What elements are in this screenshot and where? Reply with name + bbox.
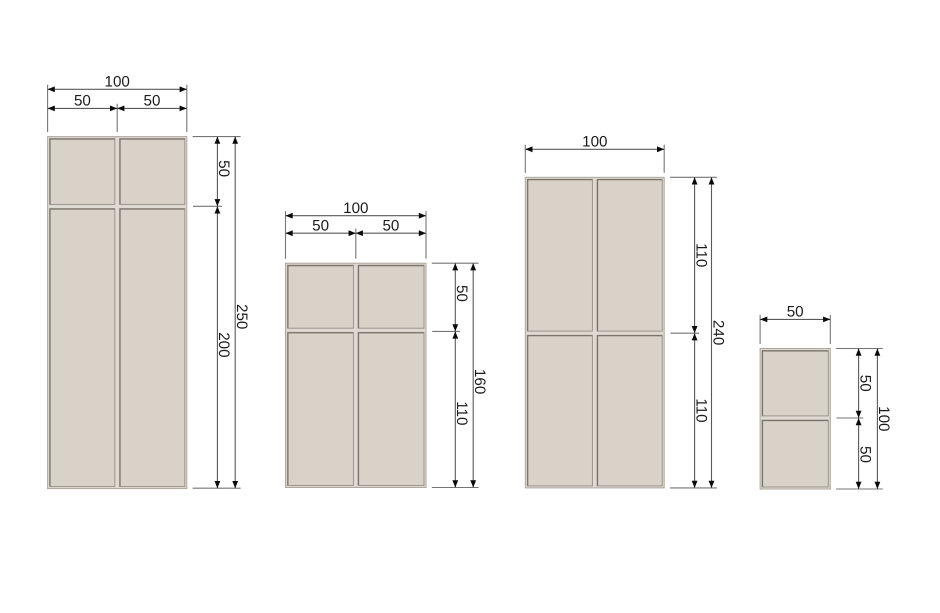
svg-text:250: 250 [233, 304, 250, 329]
svg-text:100: 100 [582, 134, 607, 151]
svg-text:50: 50 [856, 446, 873, 463]
svg-text:110: 110 [453, 401, 470, 425]
svg-text:50: 50 [74, 93, 91, 110]
svg-text:50: 50 [144, 93, 161, 110]
svg-text:50: 50 [215, 160, 232, 177]
svg-text:110: 110 [692, 243, 709, 267]
svg-text:100: 100 [105, 74, 130, 91]
svg-text:50: 50 [382, 217, 399, 234]
svg-text:50: 50 [453, 285, 470, 302]
svg-text:200: 200 [215, 332, 232, 357]
svg-text:50: 50 [312, 217, 329, 234]
svg-text:240: 240 [709, 320, 726, 345]
svg-text:100: 100 [343, 200, 368, 217]
svg-text:160: 160 [471, 369, 488, 394]
svg-text:110: 110 [692, 398, 709, 422]
svg-text:50: 50 [856, 375, 873, 392]
svg-text:50: 50 [787, 304, 804, 321]
svg-text:100: 100 [875, 406, 892, 431]
